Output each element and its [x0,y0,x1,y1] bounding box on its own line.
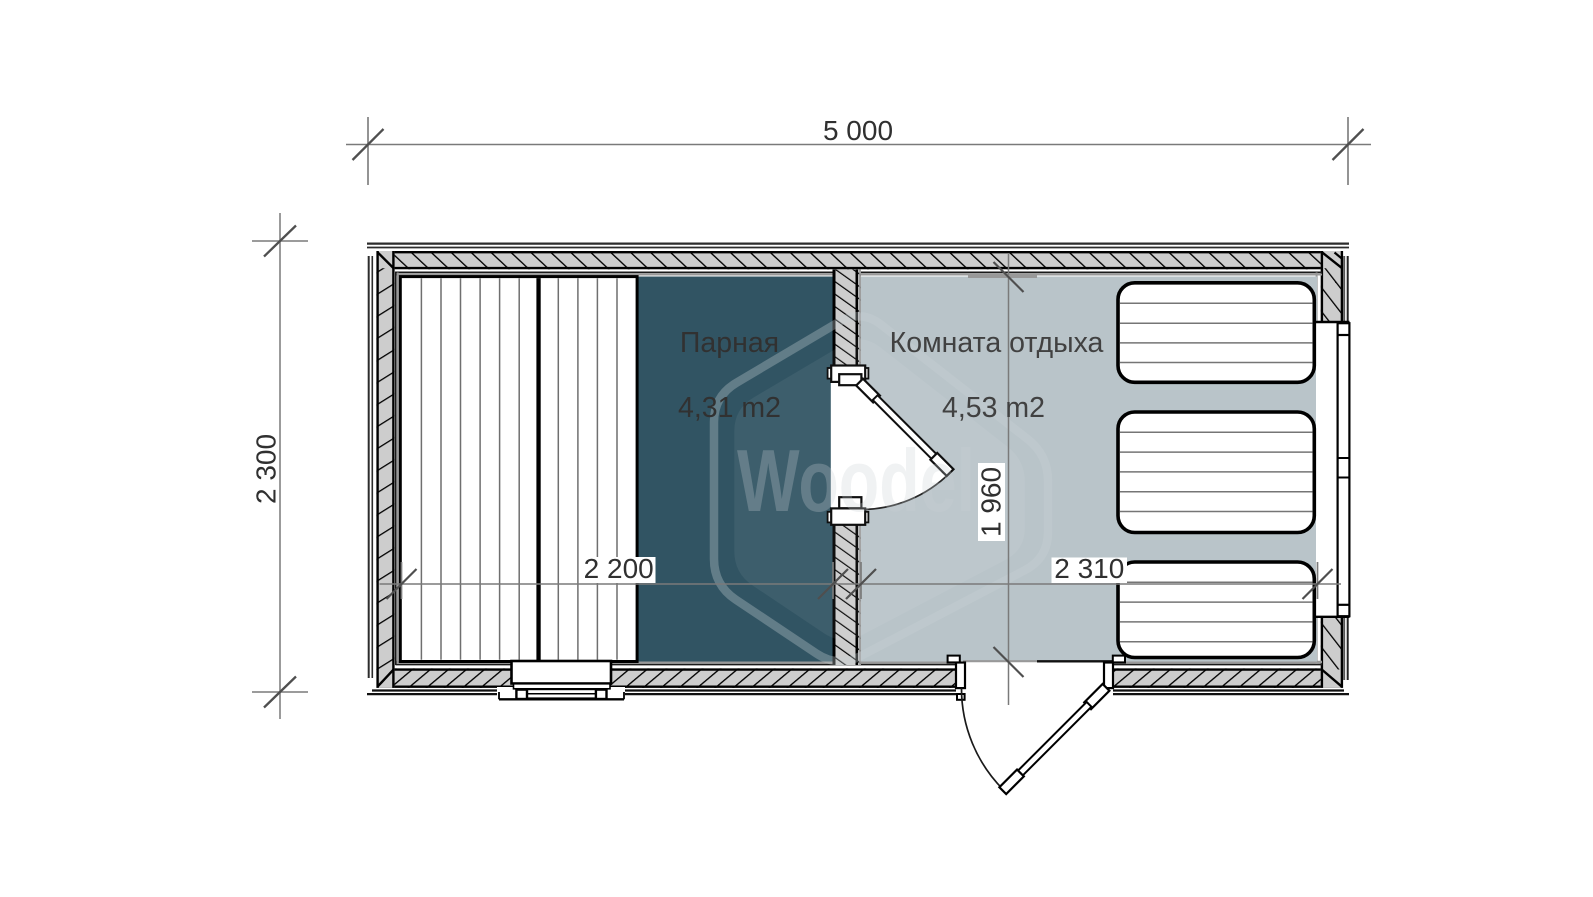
svg-text:4,53 m2: 4,53 m2 [942,392,1045,424]
svg-text:1 960: 1 960 [976,467,1007,537]
svg-text:2 310: 2 310 [1054,553,1124,584]
svg-text:Woodel: Woodel [737,431,975,530]
svg-text:2 300: 2 300 [251,434,282,504]
svg-text:Комната отдыха: Комната отдыха [890,327,1104,359]
svg-text:2 200: 2 200 [584,553,654,584]
svg-text:Парная: Парная [680,327,779,359]
svg-text:4,31 m2: 4,31 m2 [678,392,781,424]
svg-text:5 000: 5 000 [823,115,893,146]
